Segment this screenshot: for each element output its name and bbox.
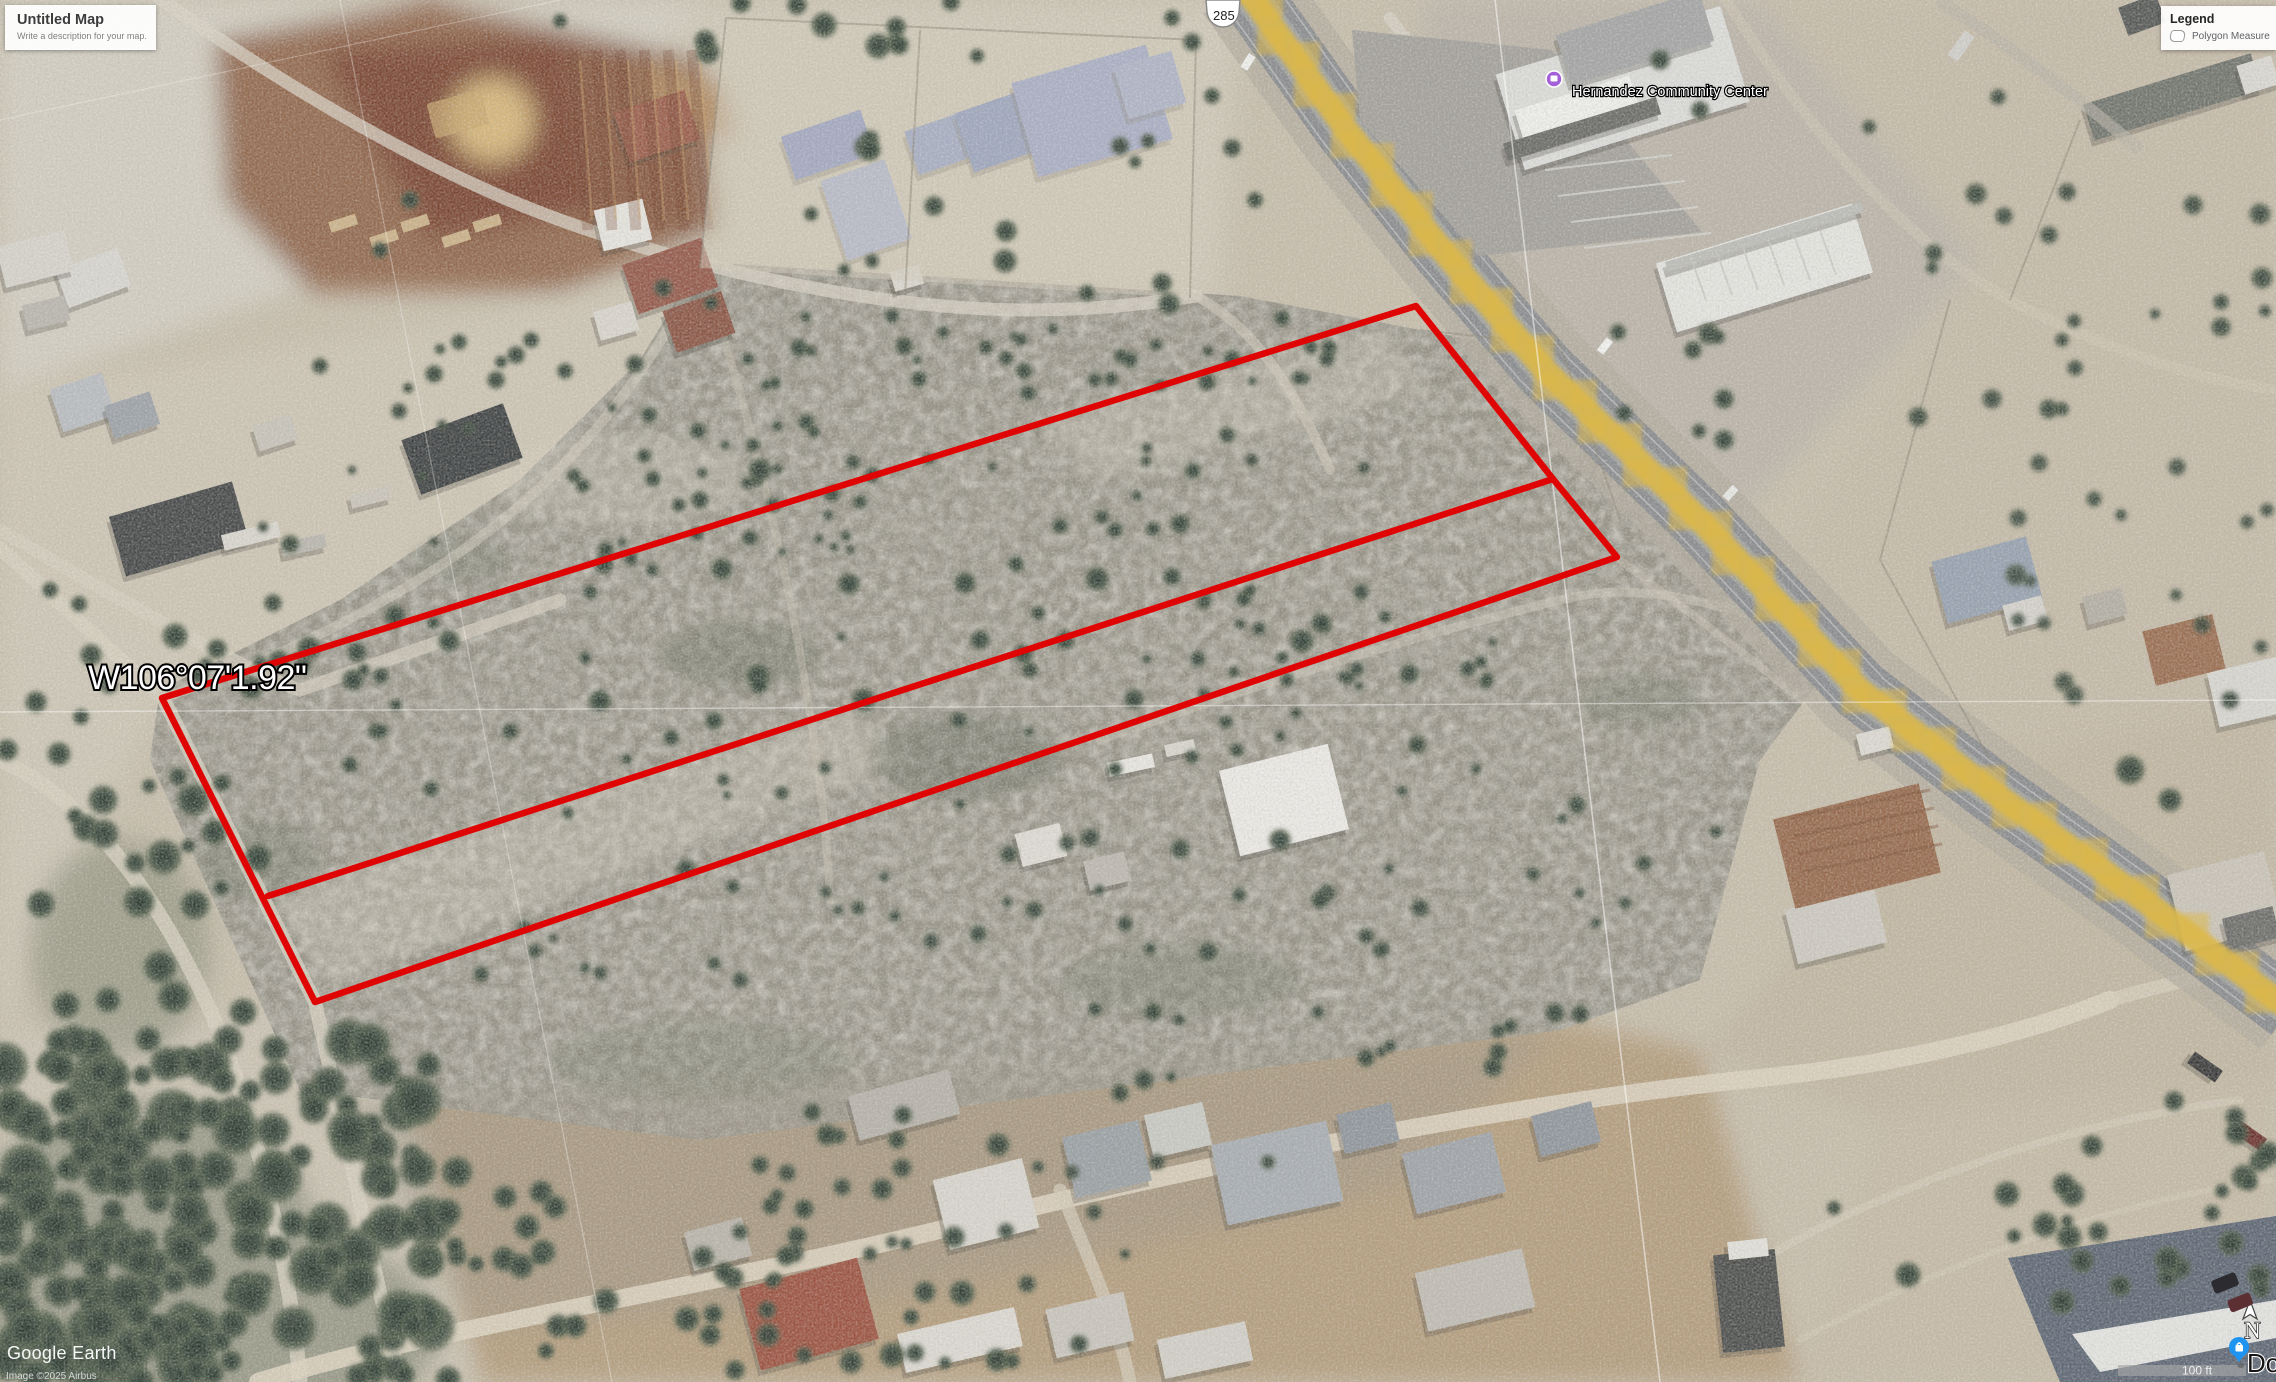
svg-text:Hernandez Community Center: Hernandez Community Center: [1572, 84, 1768, 100]
svg-text:N: N: [2244, 1318, 2261, 1343]
svg-text:Do: Do: [2247, 1348, 2276, 1378]
svg-text:Image ©2025 Airbus: Image ©2025 Airbus: [6, 1371, 97, 1382]
svg-text:285: 285: [1213, 8, 1235, 23]
svg-text:100 ft: 100 ft: [2182, 1364, 2213, 1378]
svg-text:Google Earth: Google Earth: [7, 1343, 117, 1363]
svg-text:W106°07'1.92": W106°07'1.92": [88, 659, 306, 697]
